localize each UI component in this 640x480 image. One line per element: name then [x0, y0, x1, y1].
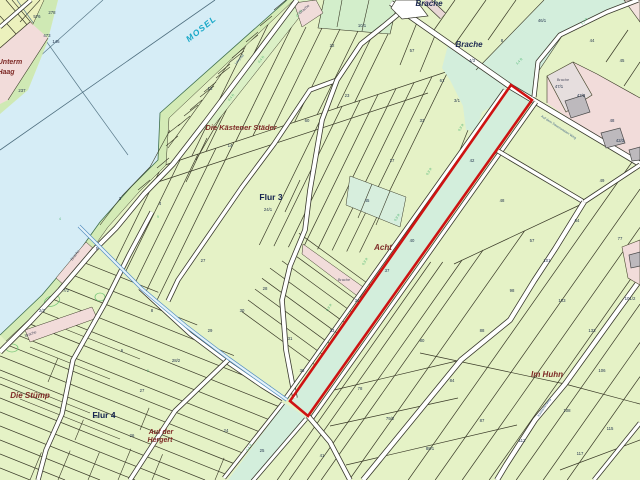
- svg-text:Brache: Brache: [557, 77, 569, 82]
- svg-text:36: 36: [300, 368, 305, 373]
- svg-text:108: 108: [563, 408, 571, 413]
- svg-text:79/2: 79/2: [386, 416, 395, 421]
- svg-text:29: 29: [208, 328, 213, 333]
- svg-text:133: 133: [588, 328, 596, 333]
- svg-text:103: 103: [558, 298, 566, 303]
- svg-text:27: 27: [201, 258, 206, 263]
- svg-text:47/1: 47/1: [555, 84, 564, 89]
- svg-text:9: 9: [147, 369, 149, 373]
- svg-text:Brache: Brache: [455, 40, 483, 49]
- svg-text:23: 23: [345, 93, 350, 98]
- svg-text:101/2: 101/2: [625, 296, 636, 301]
- svg-text:77: 77: [618, 236, 623, 241]
- svg-text:60: 60: [305, 118, 310, 123]
- svg-text:9: 9: [157, 215, 159, 219]
- svg-text:13: 13: [208, 86, 213, 91]
- svg-text:57: 57: [530, 238, 535, 243]
- svg-text:41: 41: [320, 453, 325, 458]
- svg-text:84: 84: [450, 378, 455, 383]
- svg-text:45: 45: [620, 58, 625, 63]
- svg-text:80: 80: [420, 338, 425, 343]
- svg-text:106: 106: [598, 368, 606, 373]
- svg-text:42: 42: [470, 158, 475, 163]
- svg-text:25: 25: [260, 448, 265, 453]
- svg-text:Die Kästener Städer: Die Kästener Städer: [205, 123, 277, 132]
- svg-text:33: 33: [330, 328, 335, 333]
- svg-text:Flur 3: Flur 3: [259, 192, 282, 202]
- svg-text:30: 30: [240, 308, 245, 313]
- svg-text:27: 27: [140, 388, 145, 393]
- svg-text:237: 237: [18, 88, 26, 93]
- svg-text:3/1: 3/1: [454, 98, 461, 103]
- svg-text:64: 64: [575, 218, 580, 223]
- svg-text:278: 278: [48, 10, 56, 15]
- svg-text:33: 33: [420, 118, 425, 123]
- svg-text:46/1: 46/1: [538, 18, 547, 23]
- svg-text:45: 45: [365, 198, 370, 203]
- svg-text:101: 101: [543, 258, 551, 263]
- svg-text:88/1: 88/1: [426, 446, 435, 451]
- svg-text:115: 115: [607, 426, 614, 431]
- svg-text:42/3: 42/3: [616, 138, 625, 143]
- svg-text:Im Huhn: Im Huhn: [531, 370, 563, 379]
- svg-text:Hergert: Hergert: [148, 437, 174, 444]
- svg-text:28: 28: [263, 286, 268, 291]
- svg-text:37: 37: [385, 268, 390, 273]
- svg-text:48: 48: [500, 198, 505, 203]
- svg-text:57: 57: [410, 48, 415, 53]
- svg-text:49: 49: [600, 178, 605, 183]
- svg-text:47/2: 47/2: [577, 93, 586, 98]
- svg-text:26: 26: [130, 433, 135, 438]
- svg-text:48: 48: [610, 118, 615, 123]
- svg-text:146: 146: [52, 39, 60, 44]
- svg-text:31: 31: [288, 336, 293, 341]
- svg-text:25: 25: [94, 414, 99, 419]
- svg-text:24/1: 24/1: [264, 207, 273, 212]
- svg-text:10/1: 10/1: [358, 23, 367, 28]
- svg-text:14: 14: [228, 143, 233, 148]
- svg-text:44: 44: [590, 38, 595, 43]
- svg-text:Unterm: Unterm: [0, 59, 22, 66]
- svg-text:88: 88: [480, 328, 485, 333]
- svg-text:112: 112: [519, 438, 526, 443]
- svg-text:Auf der: Auf der: [148, 429, 175, 436]
- svg-text:2/2: 2/2: [39, 308, 46, 313]
- svg-text:87: 87: [480, 418, 485, 423]
- svg-text:61: 61: [440, 78, 445, 83]
- svg-text:Die Stümp: Die Stümp: [10, 391, 50, 400]
- svg-text:Brache: Brache: [338, 277, 350, 282]
- svg-text:24: 24: [224, 428, 229, 433]
- svg-text:Acht: Acht: [373, 243, 392, 252]
- svg-text:34: 34: [355, 298, 360, 303]
- svg-text:17: 17: [390, 158, 395, 163]
- svg-text:28/2: 28/2: [172, 358, 181, 363]
- svg-text:78: 78: [358, 386, 363, 391]
- svg-text:40: 40: [410, 238, 415, 243]
- svg-text:473: 473: [43, 33, 51, 38]
- svg-text:4/3: 4/3: [469, 58, 476, 63]
- svg-text:Brache: Brache: [415, 0, 443, 8]
- svg-text:7/2: 7/2: [63, 288, 70, 293]
- svg-text:4: 4: [59, 217, 61, 221]
- svg-text:Haag: Haag: [0, 69, 15, 76]
- svg-text:22: 22: [330, 43, 335, 48]
- svg-text:576: 576: [33, 14, 41, 19]
- svg-text:117: 117: [577, 451, 584, 456]
- svg-text:98: 98: [510, 288, 515, 293]
